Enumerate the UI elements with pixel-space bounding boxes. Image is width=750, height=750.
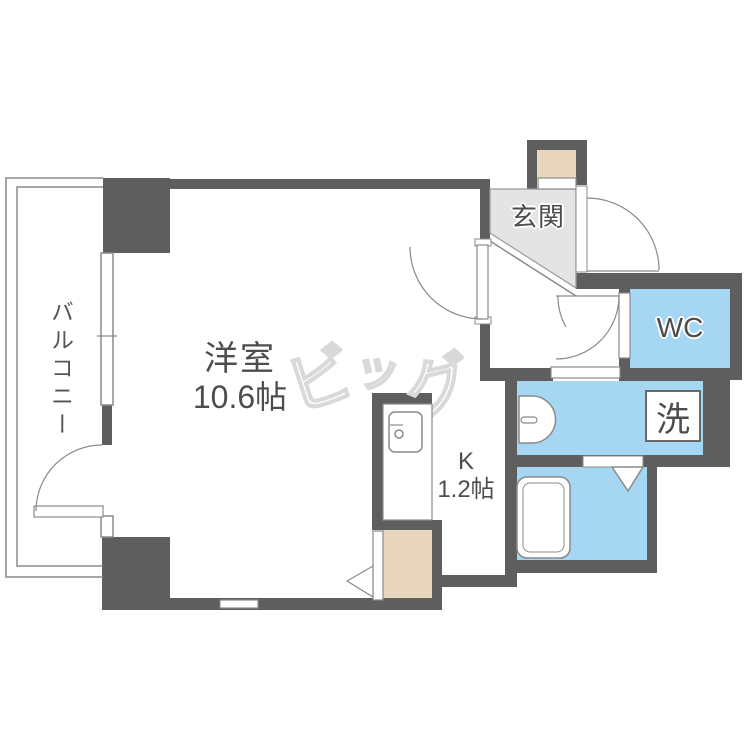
closet-door-leaf (373, 531, 383, 600)
floor-plan: ビ ッ グ (0, 0, 750, 750)
kitchen-label: K 1.2帖 (420, 448, 512, 503)
balcony-door-leaf (34, 506, 103, 517)
entrance-label: 玄関 (498, 203, 578, 233)
sink-faucet (521, 417, 537, 423)
washroom-door-swing-arc (556, 296, 619, 359)
wc-door-swing-arc (558, 296, 566, 327)
toilet-label: WC (640, 312, 720, 344)
closet-folding-door (347, 566, 373, 597)
washing-machine-box: 洗 (645, 390, 701, 442)
kitchen-sink-unit (389, 412, 422, 452)
wc-door-leaf (619, 293, 630, 358)
main-room-door-leaf (477, 245, 488, 319)
balcony-label: バルコニー (47, 300, 73, 440)
bath-folding-door (612, 467, 643, 491)
kitchen-name: K (420, 448, 512, 476)
balcony-door-swing-arc (36, 445, 102, 511)
kitchen-size: 1.2帖 (420, 476, 512, 504)
main-room-label: 洋室 10.6帖 (165, 340, 315, 416)
fixtures-layer (0, 0, 750, 750)
washroom-door-leaf (551, 367, 620, 378)
bath-door-opening (583, 456, 643, 467)
main-room-door-swing-arc (410, 247, 482, 319)
laundry-label: 洗 (656, 392, 690, 441)
main-room-size: 10.6帖 (165, 379, 315, 416)
main-room-name: 洋室 (165, 340, 315, 379)
shoe-cabinet-front (538, 178, 576, 189)
window-lower (101, 516, 113, 537)
window-upper (101, 253, 113, 405)
bottom-wall-vent (220, 600, 258, 608)
entrance-door-swing-arc (587, 198, 659, 270)
bathtub (517, 477, 570, 558)
